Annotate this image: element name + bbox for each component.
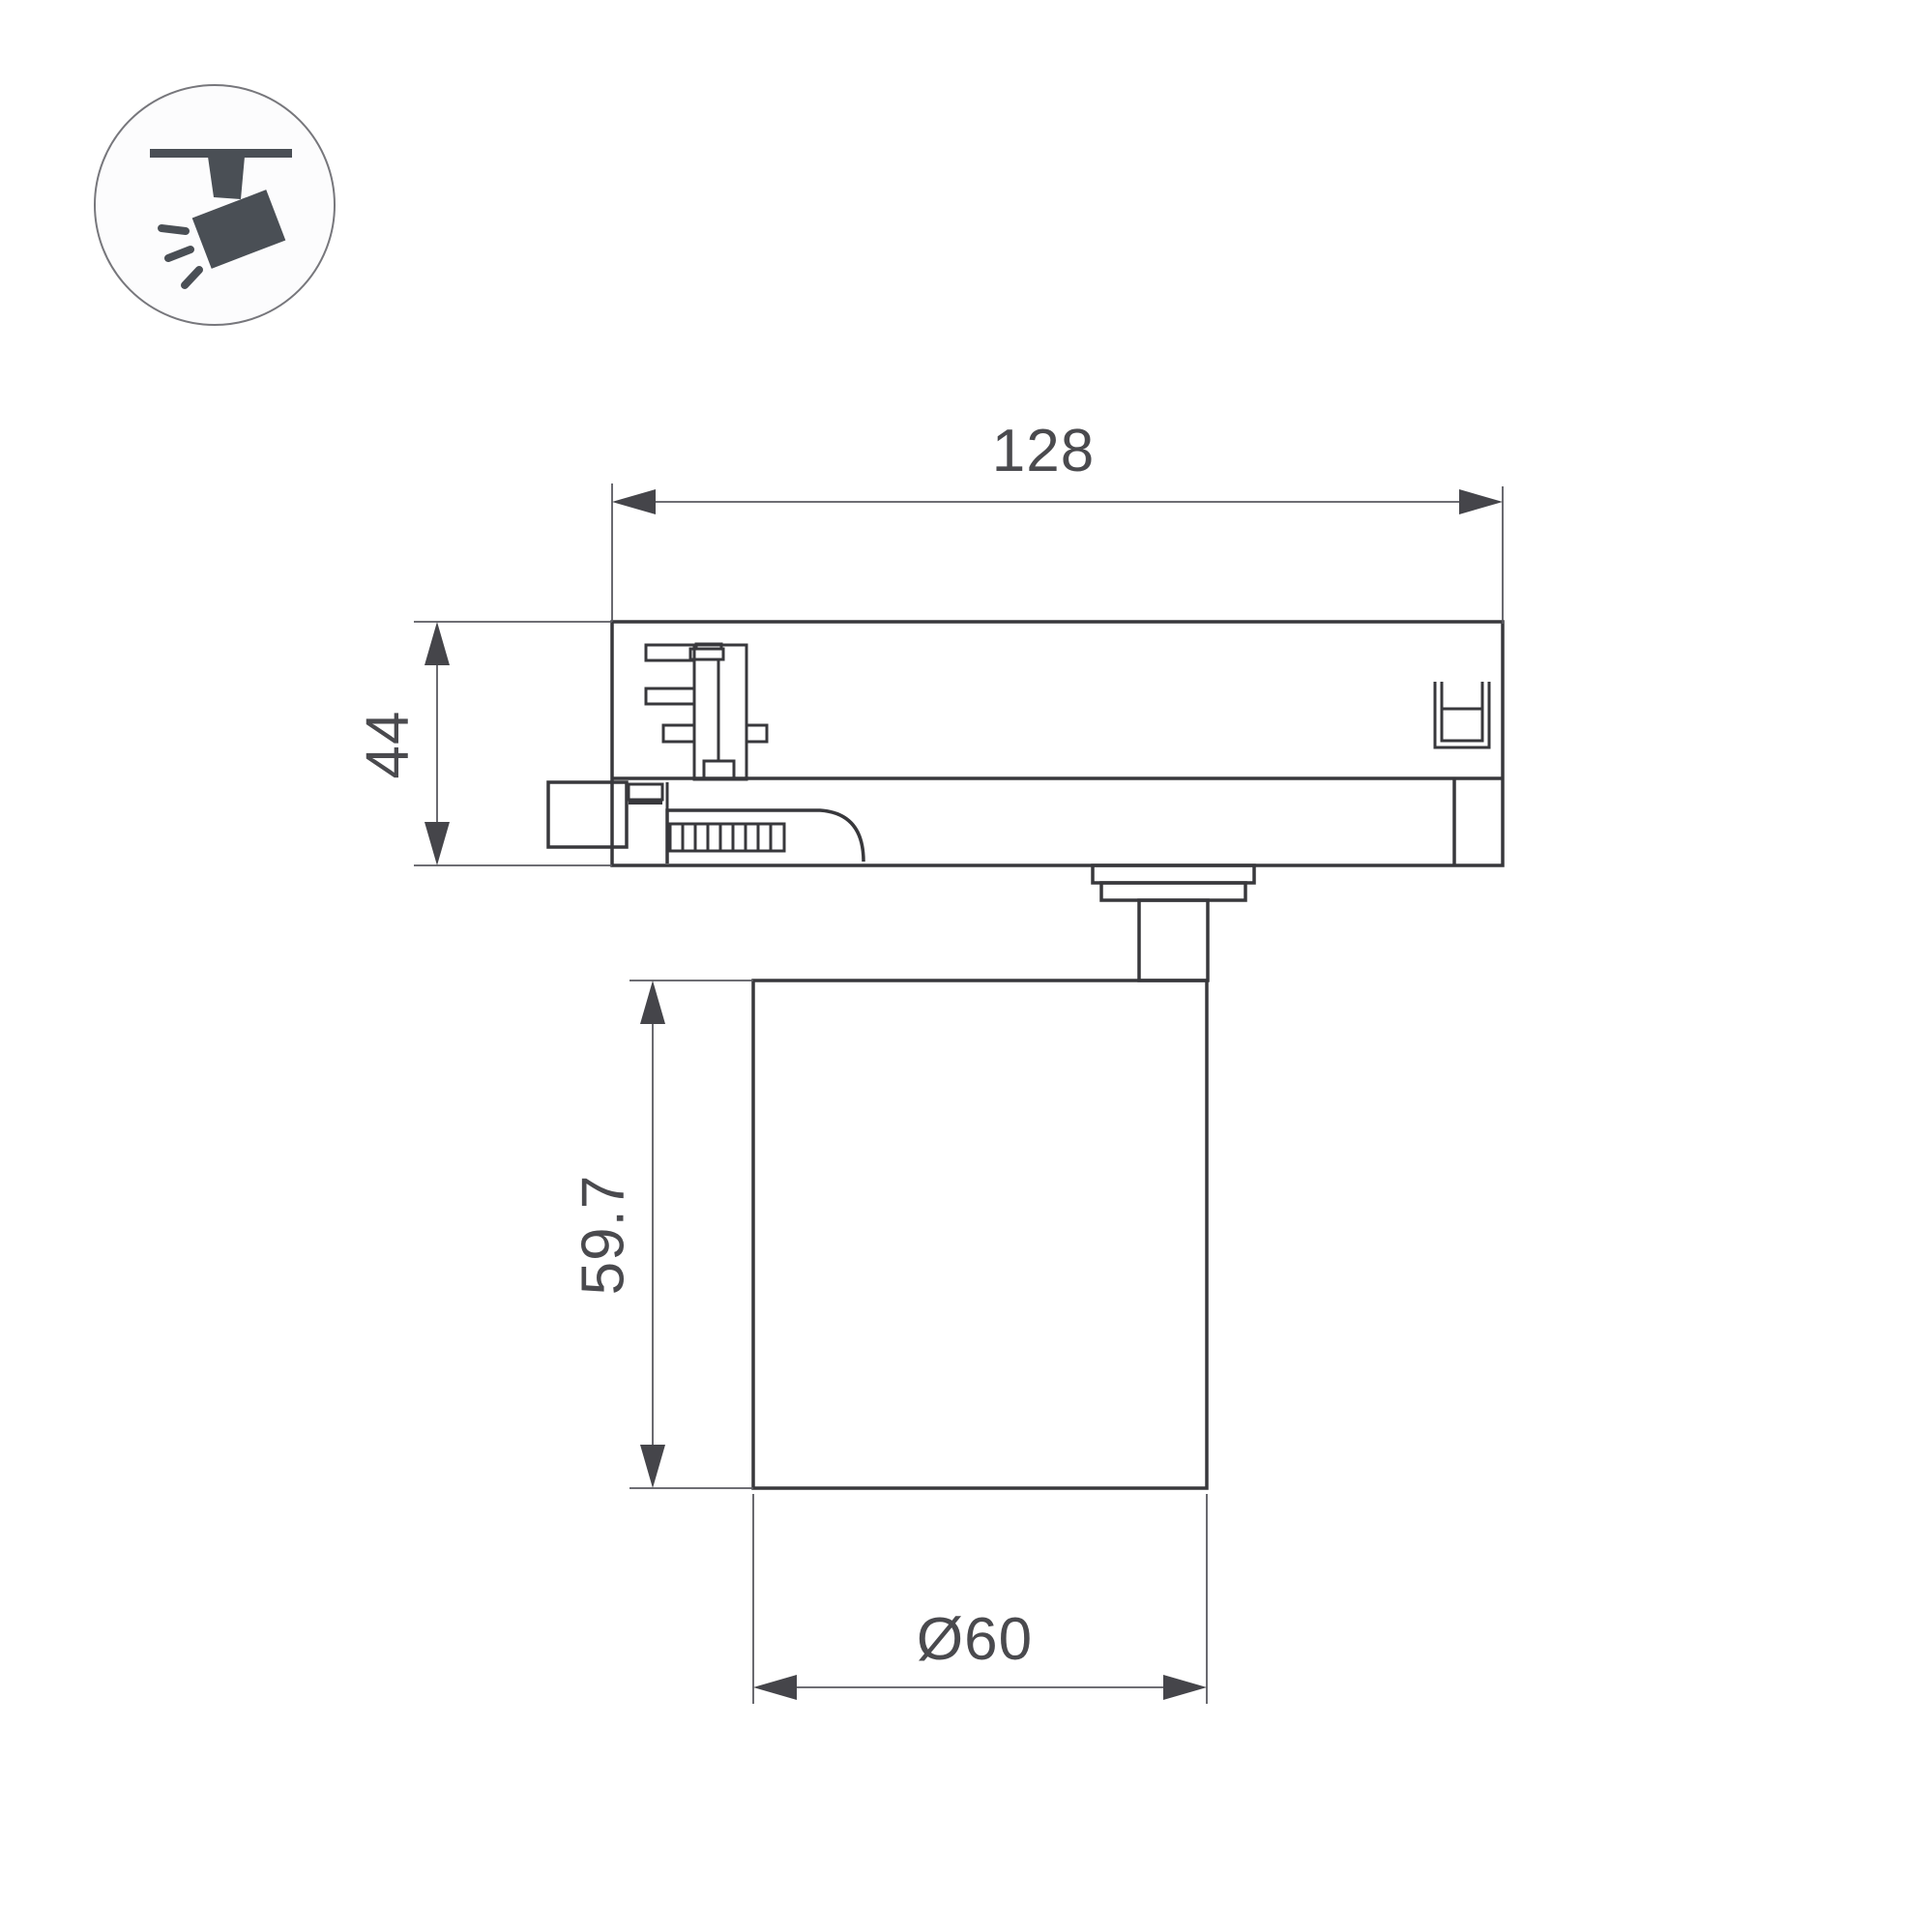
- dimension-adapter-width-label: 128: [992, 418, 1095, 484]
- arrow-up-icon: [640, 981, 665, 1024]
- lamp-body: [753, 981, 1207, 1488]
- arrow-left-icon: [753, 1675, 797, 1700]
- dimension-body-height-label: 59.7: [570, 1175, 636, 1296]
- contact-prong-bottom: [663, 725, 694, 742]
- arrow-down-icon: [640, 1445, 665, 1488]
- drawing-surface: 128 44 59.7 Ø60: [0, 0, 1932, 1932]
- dimension-adapter-height: 44: [354, 622, 612, 865]
- latch-detail: [629, 784, 662, 800]
- stem: [1139, 900, 1208, 981]
- arrow-down-icon: [424, 822, 450, 865]
- technical-drawing-canvas: 128 44 59.7 Ø60: [0, 0, 1932, 1932]
- latch-detail-fill: [629, 800, 662, 805]
- contact-prong-middle: [646, 688, 694, 704]
- contact-pin-foot: [704, 761, 734, 779]
- dimension-body-diameter: Ø60: [753, 1494, 1207, 1704]
- arrow-right-icon: [1163, 1675, 1207, 1700]
- arrow-right-icon: [1459, 489, 1503, 514]
- icon-circle: [95, 85, 335, 325]
- rotation-housing: [667, 810, 864, 864]
- icon-stem: [208, 157, 245, 199]
- track-spotlight-icon: [95, 85, 335, 325]
- dimension-adapter-width: 128: [612, 418, 1503, 624]
- ribbed-grip: [670, 824, 784, 851]
- grip-ribs: [683, 824, 771, 851]
- contact-prong-top: [646, 645, 694, 660]
- icon-track-bar: [150, 149, 292, 158]
- dimension-adapter-height-label: 44: [354, 711, 421, 779]
- contact-block: [646, 644, 767, 779]
- dimension-body-height: 59.7: [570, 981, 753, 1488]
- arrow-left-icon: [612, 489, 656, 514]
- mount-plate-lower: [1101, 883, 1245, 900]
- mount-plate-upper: [1093, 865, 1254, 883]
- contact-prong-right: [746, 725, 767, 742]
- stem-mount: [1093, 865, 1254, 981]
- dimension-body-diameter-label: Ø60: [917, 1606, 1033, 1673]
- arrow-up-icon: [424, 622, 450, 665]
- latch-lever: [548, 782, 667, 847]
- u-bracket: [1435, 682, 1489, 747]
